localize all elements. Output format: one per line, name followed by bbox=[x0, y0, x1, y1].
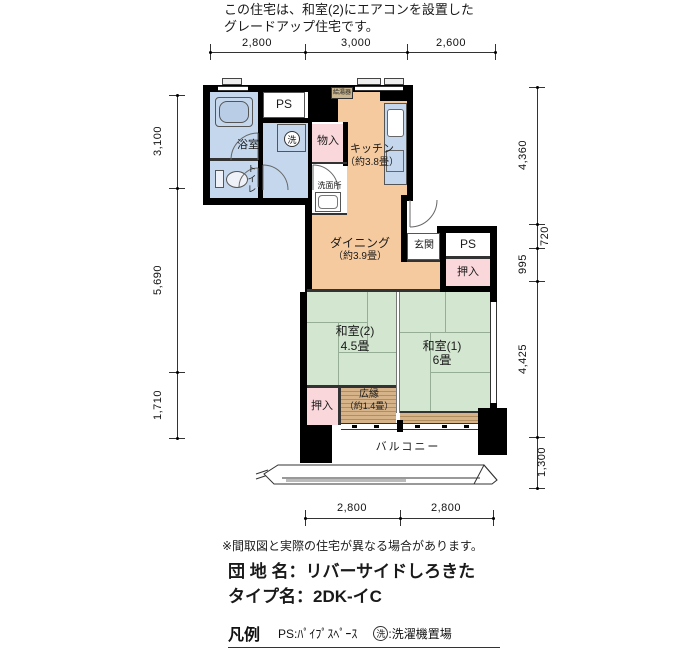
washer-space-door-arc bbox=[263, 165, 288, 190]
toilet-tank bbox=[215, 170, 224, 188]
fusuma-divider bbox=[396, 292, 400, 413]
wall bbox=[305, 198, 312, 292]
tatami-seam bbox=[445, 292, 446, 332]
label-washroom: 洗面所 bbox=[313, 181, 346, 190]
dim-left-2: 5,690 bbox=[152, 252, 166, 308]
label-washitsu1-1: 和室(1) bbox=[413, 340, 471, 354]
washer-circle-mark: 洗 bbox=[284, 131, 300, 147]
dim-dot bbox=[176, 371, 179, 374]
label-dining-2: （約3.9畳） bbox=[328, 251, 392, 263]
partition bbox=[312, 213, 347, 215]
label-kitchen-2: （約3.8畳） bbox=[340, 157, 404, 169]
room-hiroen-strip bbox=[400, 413, 478, 423]
footer-disclaimer: ※間取図と実際の住宅が異なる場合があります。 bbox=[222, 540, 483, 554]
label-bath: 浴室 bbox=[233, 139, 263, 152]
wall bbox=[203, 198, 310, 205]
dim-dot bbox=[399, 517, 402, 520]
dim-bottom-2: 2,800 bbox=[416, 502, 476, 514]
dim-dot bbox=[176, 437, 179, 440]
label-washitsu2-1: 和室(2) bbox=[326, 325, 384, 339]
partition-sliding-dining bbox=[307, 289, 440, 292]
genkan-door-arc bbox=[410, 200, 437, 227]
wall bbox=[262, 118, 308, 123]
wall bbox=[407, 85, 413, 198]
wall bbox=[308, 162, 312, 198]
partition bbox=[400, 411, 478, 413]
legend-title: 凡例 bbox=[228, 621, 260, 645]
dim-dot bbox=[209, 51, 212, 54]
range-hood bbox=[380, 92, 407, 101]
dim-dot bbox=[304, 517, 307, 520]
floorplan-page: この住宅は、和室(2)にエアコンを設置した グレードアップ住宅です。 2,800… bbox=[0, 0, 700, 650]
dim-right-4: 4,425 bbox=[517, 331, 531, 387]
washroom-sink-inner bbox=[318, 195, 338, 209]
tatami-seam bbox=[430, 372, 490, 373]
partition bbox=[407, 260, 440, 262]
balcony-railing bbox=[252, 462, 514, 492]
window-mark bbox=[464, 425, 469, 428]
dim-top-2: 3,000 bbox=[326, 37, 386, 49]
window-bath bbox=[218, 86, 248, 91]
dim-dot bbox=[176, 94, 179, 97]
dim-left-3: 1,710 bbox=[152, 377, 166, 433]
window-hiroen bbox=[341, 423, 397, 430]
dim-bottom-1: 2,800 bbox=[322, 502, 382, 514]
bathtub-inner bbox=[219, 101, 249, 123]
washer-mark-text: 洗 bbox=[287, 133, 296, 146]
dim-left-line bbox=[177, 95, 178, 438]
label-balcony: バルコニー bbox=[373, 441, 443, 454]
dim-dot bbox=[536, 86, 539, 89]
legend-underline bbox=[228, 647, 500, 648]
dim-right-3: 995 bbox=[517, 236, 531, 292]
window-mark bbox=[374, 425, 379, 428]
label-oshiire-upper: 押入 bbox=[452, 266, 484, 279]
vent bbox=[357, 78, 381, 85]
label-oshiire-lower: 押入 bbox=[306, 400, 338, 413]
window-mark bbox=[352, 425, 357, 428]
footer-estate-name: 団 地 名：リバーサイドしろきた bbox=[228, 562, 475, 582]
dim-right-2: 720 bbox=[539, 208, 553, 264]
label-washitsu1-2: 6畳 bbox=[413, 354, 471, 368]
room-dining-ext bbox=[401, 262, 440, 290]
partition bbox=[446, 256, 490, 259]
legend-wash-text: :洗濯機置場 bbox=[388, 625, 451, 642]
wall bbox=[478, 408, 507, 455]
label-genkan: 玄関 bbox=[409, 240, 439, 252]
window-mark bbox=[415, 425, 420, 428]
partition bbox=[307, 385, 397, 388]
window-washitsu1 bbox=[490, 302, 497, 403]
label-dining-1: ダイニング bbox=[328, 237, 392, 251]
dim-dot bbox=[492, 517, 495, 520]
label-monoire: 物入 bbox=[313, 135, 343, 148]
wall bbox=[300, 425, 332, 463]
header-note-line1: この住宅は、和室(2)にエアコンを設置した bbox=[224, 3, 474, 18]
legend-wash-circle: 洗 bbox=[373, 626, 388, 641]
dim-right-1: 4,360 bbox=[517, 127, 531, 183]
header-note-line2: グレードアップ住宅です。 bbox=[224, 20, 379, 35]
tatami-seam bbox=[307, 322, 367, 323]
vent bbox=[222, 78, 242, 85]
vent bbox=[384, 78, 404, 85]
label-washitsu2-2: 4.5畳 bbox=[326, 340, 384, 354]
water-heater-box: 給湯器 bbox=[331, 87, 353, 99]
dim-top-line bbox=[210, 52, 495, 53]
wall bbox=[401, 201, 407, 262]
label-ps-top: PS bbox=[270, 98, 298, 112]
label-kitchen-1: キッチン bbox=[343, 143, 401, 156]
dim-dot bbox=[304, 51, 307, 54]
dim-dot bbox=[176, 187, 179, 190]
tatami-seam bbox=[400, 332, 490, 333]
wall bbox=[437, 226, 497, 233]
wall bbox=[440, 233, 446, 292]
window-kitchen bbox=[355, 86, 403, 91]
dim-dot bbox=[494, 51, 497, 54]
window-mark bbox=[442, 425, 447, 428]
dim-dot bbox=[406, 51, 409, 54]
label-ps-right: PS bbox=[454, 238, 482, 252]
wall bbox=[308, 122, 312, 166]
legend-wash-mark: 洗 bbox=[376, 627, 385, 640]
legend-ps: PS:ﾊﾟｲﾌﾟｽﾍﾟｰｽ bbox=[278, 625, 357, 642]
dim-dot bbox=[536, 280, 539, 283]
footer-type-name: タイプ名：2DK-イC bbox=[228, 587, 382, 607]
wall bbox=[440, 286, 497, 292]
label-hiroen-1: 広縁 bbox=[348, 389, 390, 401]
dim-top-1: 2,800 bbox=[227, 37, 287, 49]
wall bbox=[203, 85, 210, 205]
label-hiroen-2: （約1.4畳） bbox=[340, 401, 398, 411]
dim-left-1: 3,100 bbox=[152, 113, 166, 169]
dim-right-line bbox=[537, 87, 538, 488]
kitchen-sink bbox=[387, 109, 404, 137]
legend-row: 凡例 PS:ﾊﾟｲﾌﾟｽﾍﾟｰｽ 洗 :洗濯機置場 bbox=[228, 622, 508, 644]
dim-top-3: 2,600 bbox=[421, 37, 481, 49]
label-toilet: トイレ bbox=[246, 162, 256, 196]
dim-right-5: 1,300 bbox=[536, 434, 550, 490]
